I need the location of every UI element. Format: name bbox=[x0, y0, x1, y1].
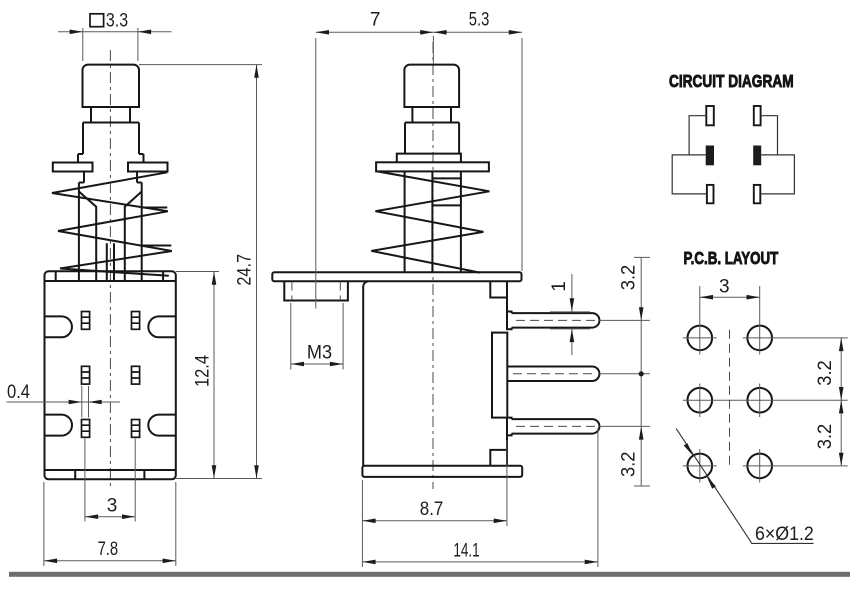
svg-text:1: 1 bbox=[549, 281, 570, 292]
svg-text:7: 7 bbox=[370, 9, 381, 30]
svg-text:12.4: 12.4 bbox=[193, 355, 214, 387]
svg-text:3: 3 bbox=[719, 276, 730, 297]
svg-text:CIRCUIT DIAGRAM: CIRCUIT DIAGRAM bbox=[669, 71, 794, 91]
svg-text:0.4: 0.4 bbox=[7, 382, 30, 403]
svg-text:3.2: 3.2 bbox=[619, 452, 640, 478]
svg-text:3.3: 3.3 bbox=[106, 11, 128, 32]
svg-text:P.C.B. LAYOUT: P.C.B. LAYOUT bbox=[684, 248, 779, 268]
svg-text:M3: M3 bbox=[307, 342, 332, 363]
svg-text:6×Ø1.2: 6×Ø1.2 bbox=[755, 524, 814, 545]
svg-text:14.1: 14.1 bbox=[453, 540, 479, 561]
svg-text:3.2: 3.2 bbox=[619, 265, 640, 291]
svg-text:3: 3 bbox=[107, 495, 118, 516]
svg-text:3.2: 3.2 bbox=[815, 424, 836, 450]
svg-text:24.7: 24.7 bbox=[235, 254, 256, 286]
svg-text:7.8: 7.8 bbox=[98, 539, 119, 560]
svg-text:3.2: 3.2 bbox=[815, 360, 836, 386]
svg-text:5.3: 5.3 bbox=[469, 9, 490, 30]
svg-text:8.7: 8.7 bbox=[420, 499, 444, 520]
